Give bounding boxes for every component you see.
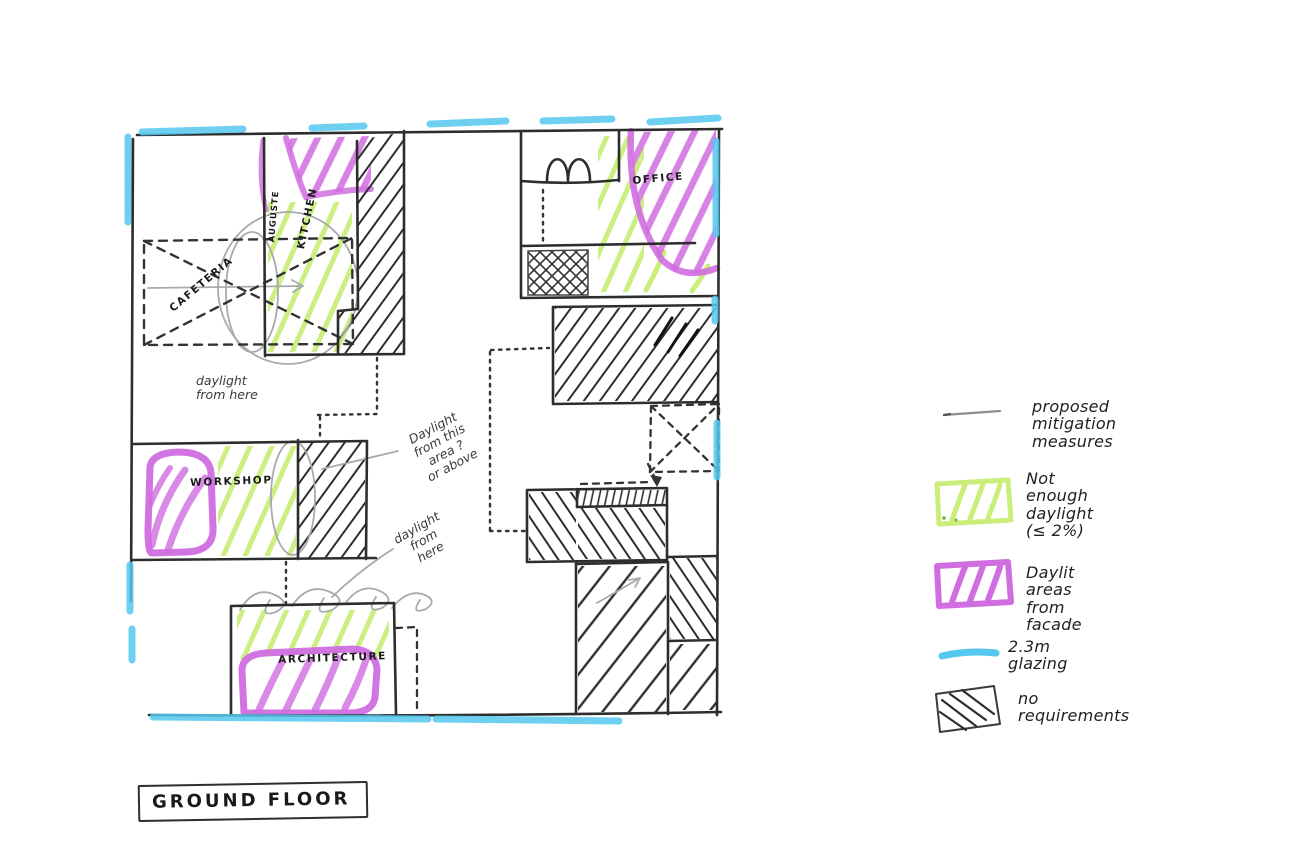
dashed-x-box: [650, 404, 719, 472]
annotation-daylight-left: daylight from here: [196, 374, 258, 402]
gray-line-swatch: [940, 404, 1006, 422]
legend-label: 2.3m glazing: [1008, 638, 1068, 673]
cyan-line-swatch: [938, 644, 1002, 664]
black-hatch-swatch: [932, 682, 1010, 736]
purple-hatch-swatch: [932, 558, 1018, 612]
legend-label: Not enough daylight (≤ 2%): [1026, 470, 1093, 539]
title-box: GROUND FLOOR: [138, 781, 369, 822]
double-door-swing: [547, 159, 590, 181]
legend-label: no requirements: [1018, 690, 1129, 725]
dashed-arrow-head: [650, 475, 662, 487]
legend-label: proposed mitigation measures: [1032, 398, 1116, 450]
sketch-page: KITCHEN AUGUSTE CAFETERIA WORKSHOP ARCHI…: [0, 0, 1300, 867]
green-hatch-swatch: [932, 476, 1018, 530]
legend-label: Daylit areas from facade: [1026, 564, 1082, 633]
page-title: GROUND FLOOR: [152, 788, 351, 812]
